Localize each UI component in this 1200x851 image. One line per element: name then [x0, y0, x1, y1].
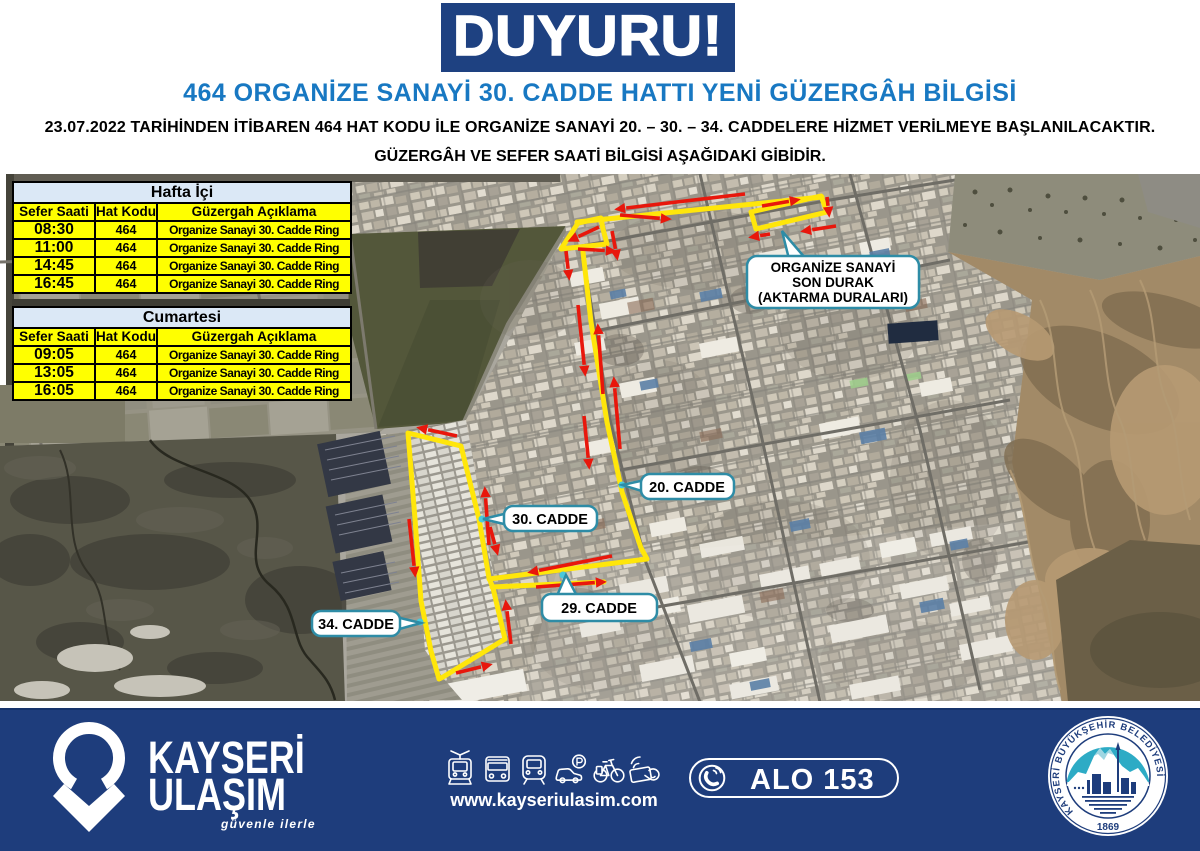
svg-text:1869: 1869 [1097, 822, 1120, 833]
svg-text:SON DURAK: SON DURAK [792, 275, 874, 290]
svg-text:ORGANİZE SANAYİ: ORGANİZE SANAYİ [771, 260, 896, 275]
svg-text:20. CADDE: 20. CADDE [649, 480, 725, 496]
svg-text:30. CADDE: 30. CADDE [512, 512, 588, 528]
svg-text:34. CADDE: 34. CADDE [318, 617, 394, 633]
svg-text:(AKTARMA DURALARI): (AKTARMA DURALARI) [758, 290, 908, 305]
svg-text:29. CADDE: 29. CADDE [561, 601, 637, 617]
